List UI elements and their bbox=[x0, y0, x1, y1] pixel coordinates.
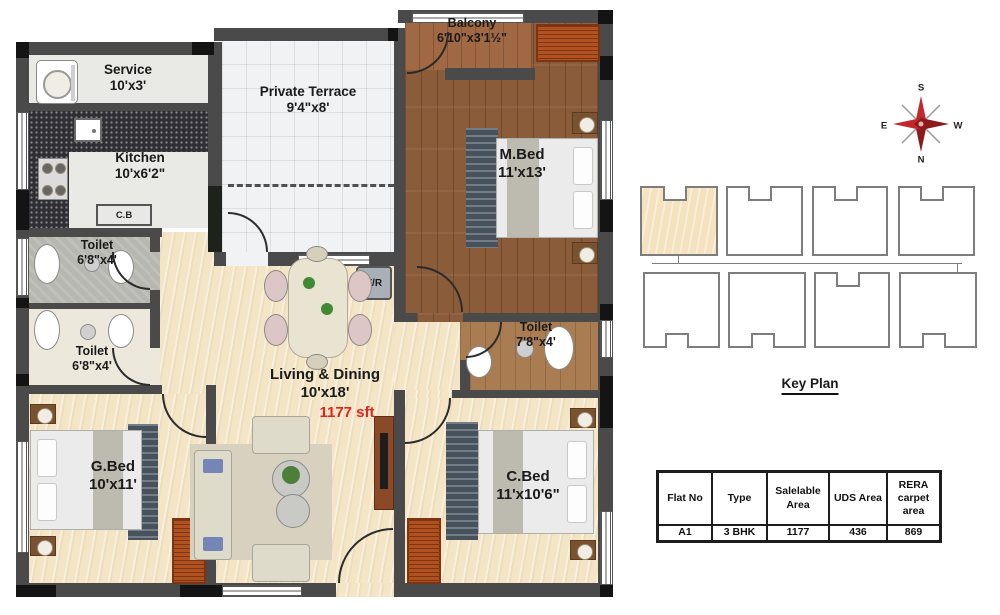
wall-top-service bbox=[16, 42, 214, 55]
burner bbox=[42, 185, 53, 196]
compass-rose bbox=[891, 94, 951, 154]
mbed-door-opening bbox=[417, 313, 463, 322]
armchair bbox=[252, 416, 310, 454]
burner bbox=[55, 163, 66, 174]
table-cell-salelable-area: 1177 bbox=[767, 525, 829, 541]
burner bbox=[42, 163, 53, 174]
mbed-label: M.Bed11'x13' bbox=[498, 146, 546, 181]
lamp bbox=[37, 408, 53, 424]
pillow bbox=[567, 485, 587, 523]
total-area-label: 1177 sft bbox=[319, 404, 374, 422]
table-cell-type: 3 BHK bbox=[712, 525, 767, 541]
key-plan-notch bbox=[836, 272, 860, 287]
table-header-type: Type bbox=[712, 472, 767, 525]
key-plan-unit bbox=[643, 272, 720, 348]
toilet-right-window bbox=[600, 320, 613, 358]
cabinet-label: C.B bbox=[116, 210, 132, 221]
cushion bbox=[203, 537, 223, 551]
dining-chair bbox=[264, 270, 288, 302]
kitchen-window bbox=[16, 112, 29, 190]
gbed-window bbox=[16, 441, 29, 553]
table-cell-rera-carpet-area: 869 bbox=[887, 525, 940, 541]
living-floor-extension bbox=[394, 316, 460, 390]
armchair bbox=[252, 544, 310, 582]
gbed-label: G.Bed10'x11' bbox=[89, 458, 137, 493]
column bbox=[16, 188, 29, 230]
table-header-flat-no: Flat No bbox=[658, 472, 712, 525]
lamp bbox=[579, 117, 595, 133]
toilet-top-wc bbox=[34, 244, 60, 284]
key-plan-unit bbox=[726, 186, 803, 256]
toilet-top-door-opening bbox=[150, 252, 160, 290]
compass-west: W bbox=[954, 121, 963, 132]
washing-machine-drum bbox=[43, 70, 72, 99]
wall-toilet-divider bbox=[29, 303, 150, 309]
floor-plan-sheet: C.B bbox=[0, 0, 1000, 615]
wall-balcony-divider bbox=[445, 68, 535, 80]
cbed-nightstand bbox=[570, 540, 596, 560]
wall-terrace-top bbox=[214, 28, 398, 41]
column bbox=[598, 10, 613, 24]
cbed-wardrobe bbox=[407, 518, 441, 584]
service-label: Service10'x3' bbox=[104, 62, 152, 94]
column bbox=[600, 304, 613, 320]
coffee-table bbox=[276, 494, 310, 528]
table-header-salelable-area: Salelable Area bbox=[767, 472, 829, 525]
table-cell-flat-no: A1 bbox=[658, 525, 712, 541]
kitchen-sink bbox=[74, 118, 102, 142]
utility-shaft bbox=[208, 186, 222, 252]
plant bbox=[282, 466, 300, 484]
key-plan-unit-highlighted bbox=[640, 186, 718, 256]
key-plan-notch bbox=[834, 186, 858, 201]
mbed-wardrobe bbox=[536, 24, 600, 62]
lamp bbox=[579, 247, 595, 263]
compass-south: S bbox=[918, 83, 924, 94]
column bbox=[600, 56, 613, 80]
stove bbox=[38, 158, 68, 200]
mbed-rug bbox=[466, 128, 498, 248]
balcony-label: Balcony6'10"x3'1½" bbox=[437, 16, 507, 46]
column bbox=[180, 585, 222, 597]
washing-machine-panel bbox=[71, 65, 75, 101]
cushion bbox=[203, 459, 223, 473]
cbed-window bbox=[600, 511, 613, 585]
terrace-dashed-line bbox=[228, 184, 394, 187]
tv-unit bbox=[374, 416, 394, 510]
key-plan-unit bbox=[728, 272, 806, 348]
table-header-uds-area: UDS Area bbox=[829, 472, 887, 525]
dining-chair bbox=[348, 270, 372, 302]
key-plan-unit bbox=[899, 272, 977, 348]
pillow bbox=[573, 147, 593, 185]
column bbox=[388, 28, 398, 41]
sink-drain bbox=[92, 129, 96, 133]
tv-screen bbox=[380, 433, 388, 489]
dining-chair bbox=[348, 314, 372, 346]
column bbox=[16, 42, 29, 58]
terrace-label: Private Terrace9'4"x8' bbox=[260, 84, 357, 116]
compass-north: N bbox=[918, 155, 925, 166]
compass-east: E bbox=[881, 121, 887, 132]
area-table: Flat No Type Salelable Area UDS Area RER… bbox=[656, 470, 942, 543]
gbed-nightstand bbox=[30, 404, 56, 424]
key-plan-unit bbox=[814, 272, 890, 348]
toilet-mid-wc bbox=[34, 310, 60, 350]
pillow bbox=[567, 441, 587, 479]
column bbox=[16, 298, 29, 308]
key-plan-connector bbox=[652, 263, 962, 264]
wall-kitchen-bottom bbox=[16, 228, 162, 237]
key-plan-connector-stub bbox=[678, 256, 679, 264]
table-cell-uds-area: 436 bbox=[829, 525, 887, 541]
key-plan-notch bbox=[922, 333, 946, 348]
pillow bbox=[37, 483, 57, 521]
toilet-right-label: Toilet7'8"x4' bbox=[516, 320, 556, 350]
column bbox=[600, 198, 613, 232]
cbed-label: C.Bed11'x10'6" bbox=[496, 468, 559, 503]
pillow bbox=[37, 439, 57, 477]
compass-star-icon bbox=[891, 94, 951, 154]
wall-gbed-top bbox=[16, 385, 162, 394]
mbed-nightstand bbox=[572, 112, 598, 134]
toilet-top-label: Toilet6'8"x4' bbox=[77, 238, 117, 268]
lamp bbox=[37, 540, 53, 556]
living-window bbox=[222, 585, 302, 597]
living-label: Living & Dining10'x18' bbox=[270, 366, 380, 401]
kitchen-label: Kitchen10'x6'2" bbox=[115, 150, 165, 182]
wall-terrace-right bbox=[394, 28, 405, 264]
toilet-mid-label: Toilet6'8"x4' bbox=[72, 344, 112, 374]
key-plan-unit bbox=[898, 186, 975, 256]
cabinet-box: C.B bbox=[96, 204, 152, 226]
key-plan-unit bbox=[812, 186, 888, 256]
key-plan-notch bbox=[748, 186, 772, 201]
mbed-window bbox=[600, 120, 613, 200]
cbed-rug bbox=[446, 422, 478, 540]
column bbox=[16, 585, 56, 597]
burner bbox=[55, 185, 66, 196]
toilet-mid-basin bbox=[108, 314, 134, 348]
column bbox=[16, 374, 29, 386]
cbed-nightstand bbox=[570, 408, 596, 428]
key-plan-connector-stub bbox=[957, 263, 958, 272]
washing-machine bbox=[36, 60, 78, 104]
plant bbox=[321, 303, 333, 315]
sofa bbox=[194, 450, 232, 560]
dining-chair bbox=[264, 314, 288, 346]
toilet-mid-shower bbox=[80, 324, 96, 340]
column bbox=[600, 583, 613, 597]
main-door-opening bbox=[336, 583, 394, 597]
key-plan-notch bbox=[920, 186, 944, 201]
key-plan-notch bbox=[751, 333, 775, 348]
column bbox=[600, 376, 613, 428]
toilet-top-window bbox=[16, 238, 29, 296]
terrace-door-opening bbox=[226, 252, 268, 266]
lamp bbox=[577, 412, 593, 428]
mbed-nightstand bbox=[572, 242, 598, 264]
wall-cbed-left bbox=[394, 390, 405, 583]
cbed-door-opening bbox=[405, 390, 452, 398]
plant bbox=[303, 277, 315, 289]
column bbox=[192, 42, 214, 55]
key-plan-notch bbox=[663, 186, 687, 201]
key-plan-title: Key Plan bbox=[781, 376, 838, 395]
toilet-mid-door-opening bbox=[150, 348, 160, 385]
dining-stool bbox=[306, 246, 328, 262]
pillow bbox=[573, 191, 593, 229]
gbed-nightstand bbox=[30, 536, 56, 556]
table-header-rera-carpet-area: RERA carpet area bbox=[887, 472, 940, 525]
key-plan-notch bbox=[665, 333, 689, 348]
dining-table bbox=[288, 258, 348, 358]
wall-bottom bbox=[16, 583, 613, 597]
wall-service-kitchen-divider bbox=[29, 103, 208, 111]
lamp bbox=[577, 544, 593, 560]
